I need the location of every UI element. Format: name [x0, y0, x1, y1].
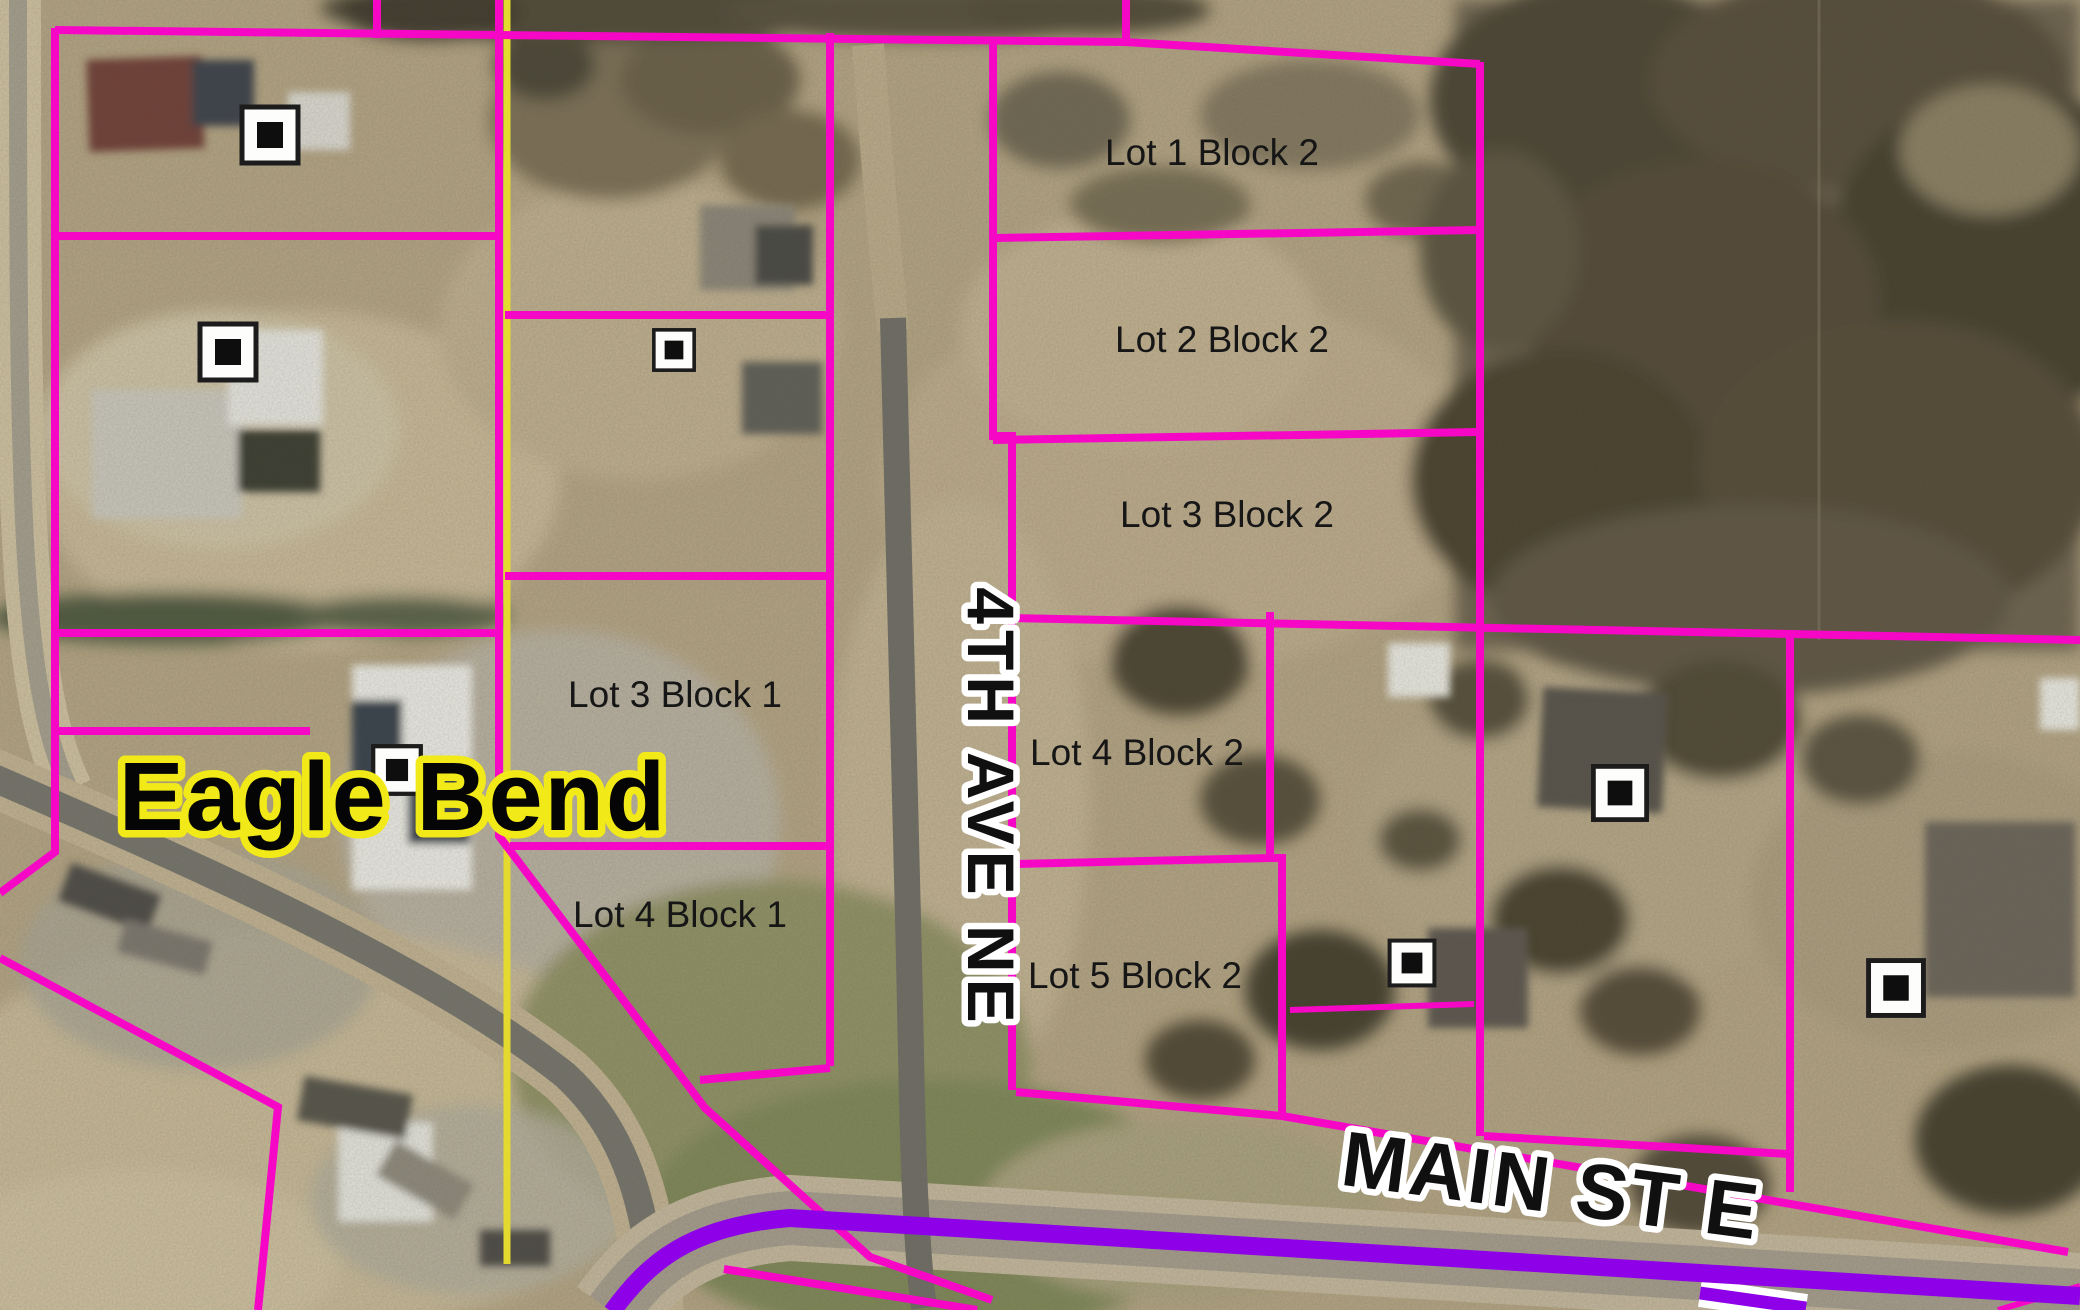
- parcel-map-viewport[interactable]: Lot 1 Block 2 Lot 2 Block 2 Lot 3 Block …: [0, 0, 2080, 1310]
- lot-label: Lot 1 Block 2: [1105, 132, 1319, 173]
- building-marker-icon: [1869, 961, 1924, 1016]
- building-marker-icon: [1593, 766, 1646, 819]
- lot-label: Lot 5 Block 2: [1028, 955, 1242, 996]
- lot-label: Lot 2 Block 2: [1115, 319, 1329, 360]
- street-label-4th-ave-ne: 4TH AVE NE: [954, 587, 1028, 1028]
- lot-label: Lot 4 Block 1: [573, 894, 787, 935]
- building-marker-icon: [654, 330, 694, 370]
- building-marker-icon: [1390, 941, 1435, 986]
- image-grain: [0, 0, 2080, 1310]
- lot-label: Lot 4 Block 2: [1030, 732, 1244, 773]
- building-marker-icon: [242, 107, 298, 163]
- town-label-eagle-bend: Eagle Bend: [119, 742, 667, 851]
- lot-label: Lot 3 Block 1: [568, 674, 782, 715]
- map-canvas[interactable]: Lot 1 Block 2 Lot 2 Block 2 Lot 3 Block …: [0, 0, 2080, 1310]
- building-marker-icon: [200, 324, 256, 380]
- lot-label: Lot 3 Block 2: [1120, 494, 1334, 535]
